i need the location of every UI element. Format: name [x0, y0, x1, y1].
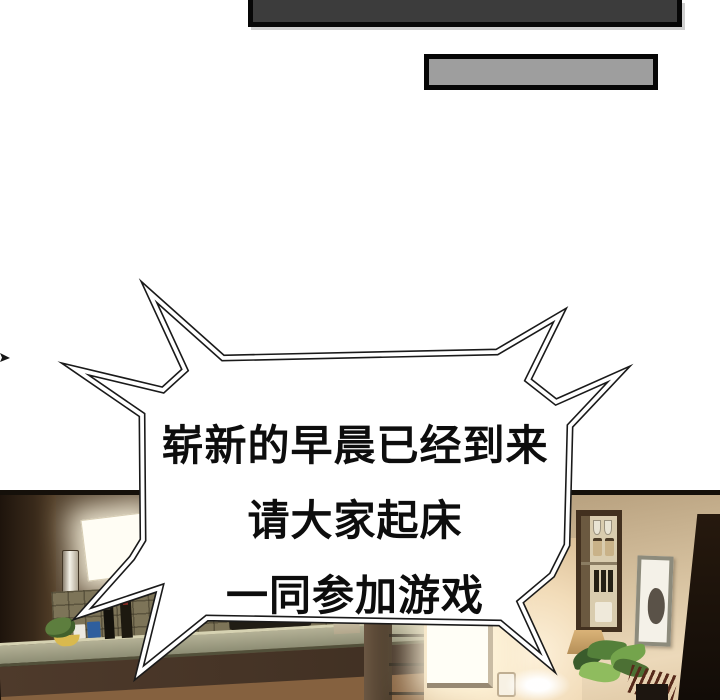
dialogue-line-3: 一同参加游戏 — [115, 558, 595, 633]
speech-bubble-text: 崭新的早晨已经到来 请大家起床 一同参加游戏 — [115, 408, 595, 633]
wine-bottle — [103, 607, 115, 640]
caption-box — [424, 54, 658, 90]
plant-pot — [636, 684, 668, 700]
dialogue-line-2: 请大家起床 — [115, 483, 595, 558]
shelf-bottle — [608, 570, 613, 592]
hanging-wine-glass — [604, 520, 612, 535]
frame-artwork — [647, 588, 665, 625]
blue-cup — [87, 621, 101, 638]
shelf-bottle — [601, 570, 606, 592]
potted-plant — [570, 638, 686, 700]
lamp-glow — [505, 668, 571, 700]
picture-frame — [634, 555, 673, 646]
panel-bar-dark — [248, 0, 682, 27]
shelf-jar — [605, 538, 614, 556]
shelf-towel — [595, 602, 612, 622]
dialogue-line-1: 崭新的早晨已经到来 — [115, 408, 595, 483]
left-edge-spike-mark — [0, 353, 10, 362]
